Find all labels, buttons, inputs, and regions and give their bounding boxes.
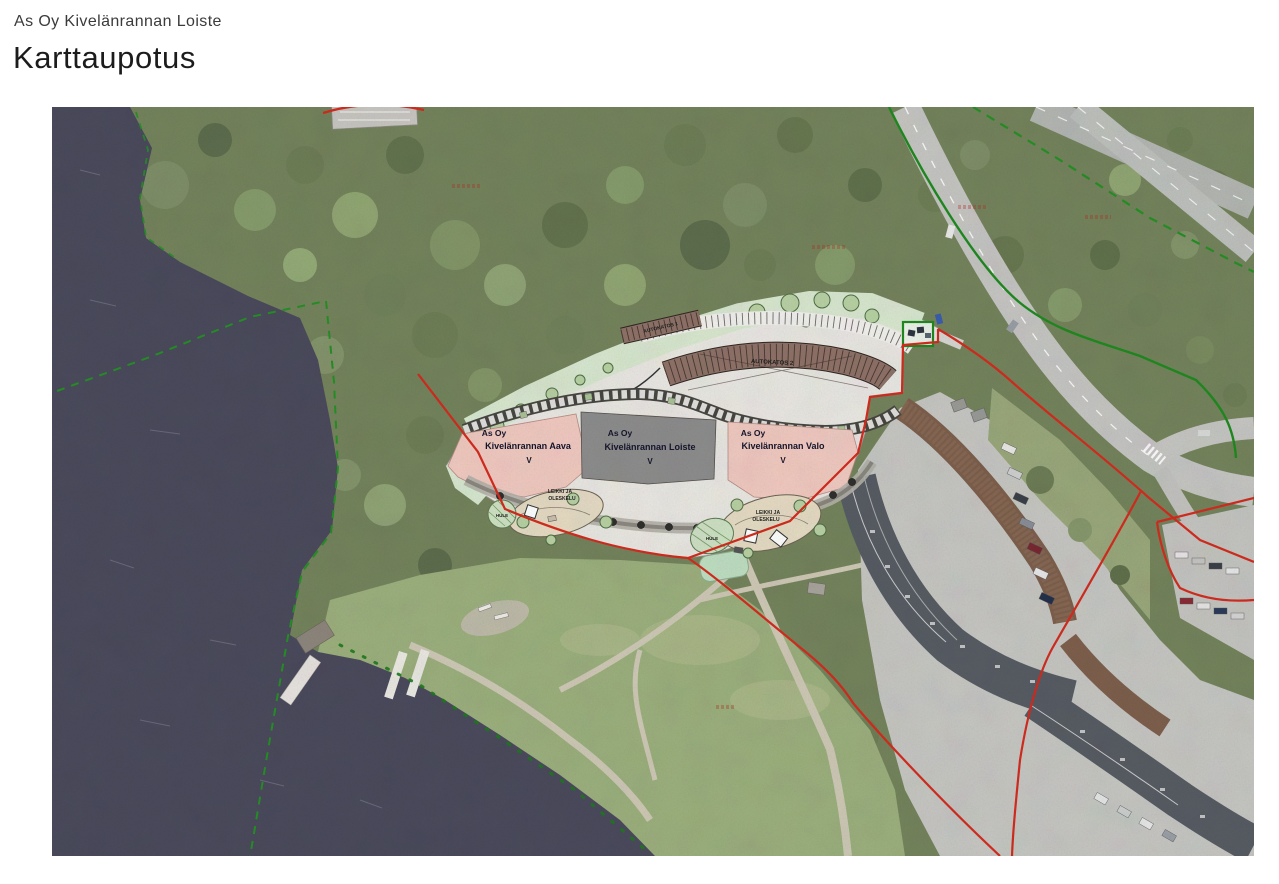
map-figure: AUTOKATOS 1 AUTOKATOS 2 (52, 107, 1254, 856)
page-title: Karttaupotus (13, 40, 196, 76)
document-header: As Oy Kivelänrannan Loiste (14, 13, 222, 31)
aerial-site-map: AUTOKATOS 1 AUTOKATOS 2 (52, 107, 1254, 856)
photo-blotch (52, 107, 1254, 856)
